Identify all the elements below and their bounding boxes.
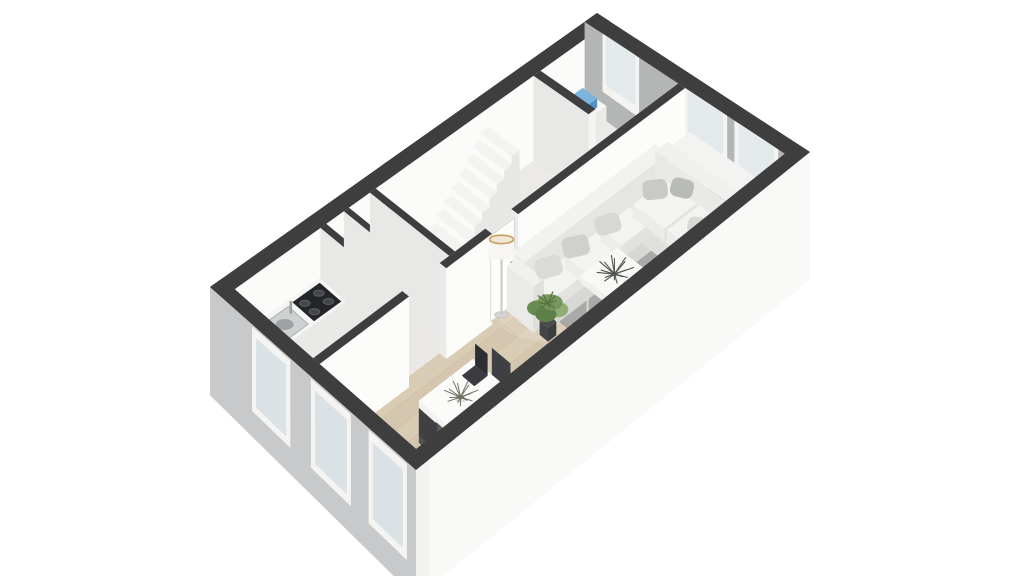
cooktop-burners-3: [323, 299, 333, 305]
pillow: [562, 235, 589, 258]
pillow: [670, 178, 693, 198]
wall-south-west-facade-front: [416, 460, 429, 576]
floorplan-canvas: [0, 0, 1024, 576]
sofa-pillows-1: [562, 235, 589, 258]
sofa-pillows-3: [643, 180, 667, 199]
floorplan-3d-render: [0, 0, 1024, 576]
cooktop-burners-1: [309, 309, 319, 315]
cooktop-burners-0: [300, 300, 310, 306]
cooktop-burners-2: [314, 290, 324, 296]
wall-living-long-mid-side: [440, 263, 447, 359]
pillow: [643, 180, 667, 199]
floor-lamp-shade-top: [490, 235, 514, 243]
sofa-pillows-4: [670, 178, 693, 198]
